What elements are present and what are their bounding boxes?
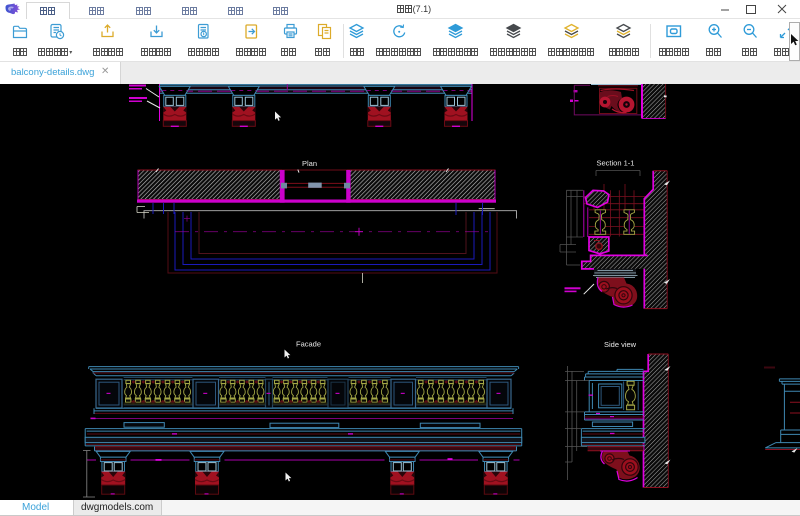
svg-text:Section 1-1: Section 1-1 bbox=[597, 159, 635, 168]
svg-text:Side view: Side view bbox=[604, 340, 637, 349]
svg-text:Facade: Facade bbox=[296, 340, 321, 349]
svg-text:Plan: Plan bbox=[302, 159, 317, 168]
